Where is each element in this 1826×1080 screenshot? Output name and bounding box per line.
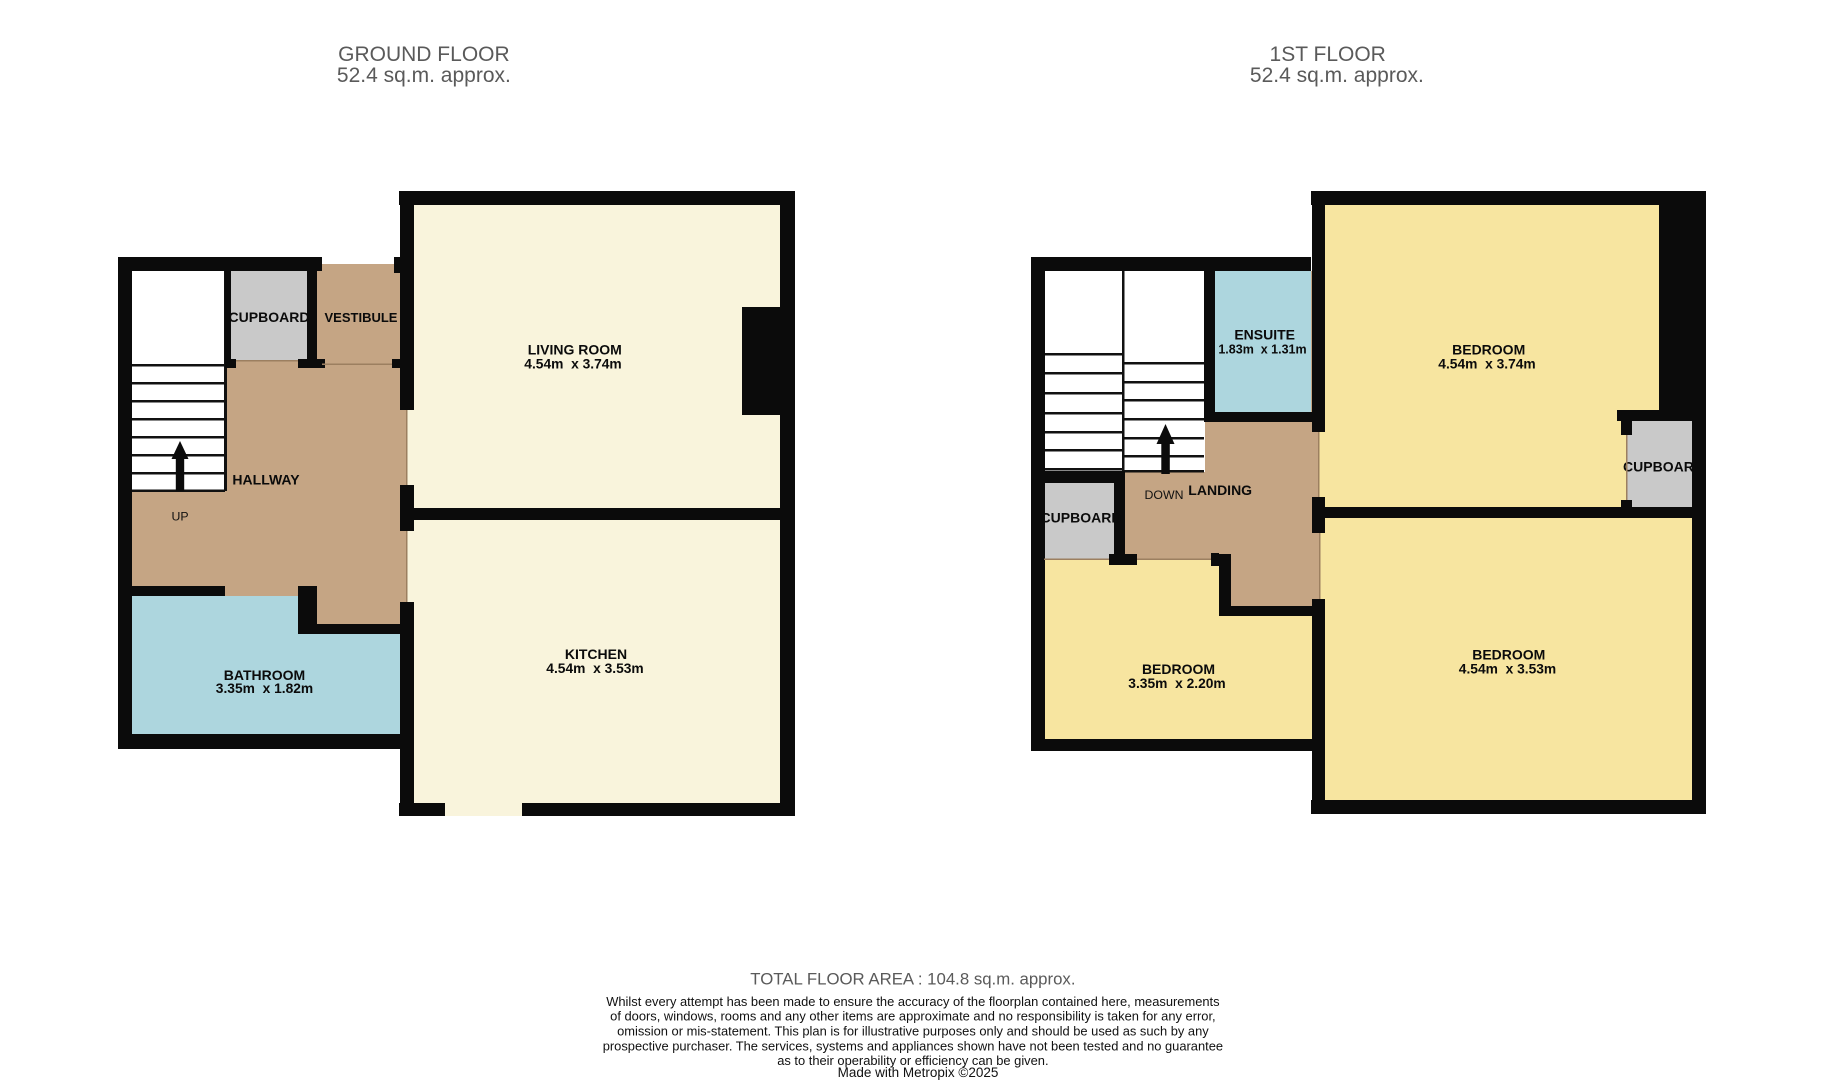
svg-text:1.83m x 1.31m: 1.83m x 1.31m [1218, 343, 1306, 357]
svg-text:BEDROOM: BEDROOM [1472, 647, 1545, 663]
svg-text:UP: UP [171, 509, 188, 523]
svg-text:GROUND FLOOR: GROUND FLOOR [338, 43, 510, 66]
svg-text:prospective purchaser. The ser: prospective purchaser. The services, sys… [603, 1038, 1223, 1053]
svg-text:1ST FLOOR: 1ST FLOOR [1270, 43, 1386, 66]
svg-text:4.54m x 3.53m: 4.54m x 3.53m [1459, 662, 1556, 677]
svg-text:Whilst every attempt has been: Whilst every attempt has been made to en… [606, 994, 1219, 1009]
svg-text:52.4 sq.m. approx.: 52.4 sq.m. approx. [1250, 64, 1424, 87]
svg-text:3.35m x 1.82m: 3.35m x 1.82m [216, 681, 313, 696]
svg-text:CUPBOARD: CUPBOARD [1041, 510, 1122, 526]
svg-text:LIVING ROOM: LIVING ROOM [528, 342, 622, 358]
svg-text:BEDROOM: BEDROOM [1142, 661, 1215, 677]
svg-text:VESTIBULE: VESTIBULE [325, 310, 398, 325]
svg-text:52.4 sq.m. approx.: 52.4 sq.m. approx. [337, 64, 511, 87]
svg-text:4.54m x 3.53m: 4.54m x 3.53m [546, 661, 643, 676]
svg-text:DOWN: DOWN [1145, 488, 1184, 502]
svg-text:HALLWAY: HALLWAY [232, 472, 300, 488]
svg-text:CUPBOARD: CUPBOARD [1623, 459, 1704, 475]
svg-text:Made with Metropix ©2025: Made with Metropix ©2025 [838, 1065, 999, 1080]
svg-text:TOTAL FLOOR AREA : 104.8 sq.m.: TOTAL FLOOR AREA : 104.8 sq.m. approx. [750, 969, 1075, 988]
svg-text:ENSUITE: ENSUITE [1234, 327, 1295, 343]
svg-text:CUPBOARD: CUPBOARD [229, 309, 310, 325]
svg-text:3.35m x 2.20m: 3.35m x 2.20m [1128, 676, 1225, 691]
svg-text:LANDING: LANDING [1188, 482, 1252, 498]
svg-text:omission or mis-statement. Thi: omission or mis-statement. This plan is … [617, 1024, 1209, 1039]
svg-text:KITCHEN: KITCHEN [565, 646, 627, 662]
svg-text:4.54m x 3.74m: 4.54m x 3.74m [1438, 356, 1535, 371]
svg-text:4.54m x 3.74m: 4.54m x 3.74m [524, 356, 621, 371]
svg-text:of doors, windows, rooms and a: of doors, windows, rooms and any other i… [610, 1009, 1215, 1024]
svg-text:BEDROOM: BEDROOM [1452, 342, 1525, 358]
